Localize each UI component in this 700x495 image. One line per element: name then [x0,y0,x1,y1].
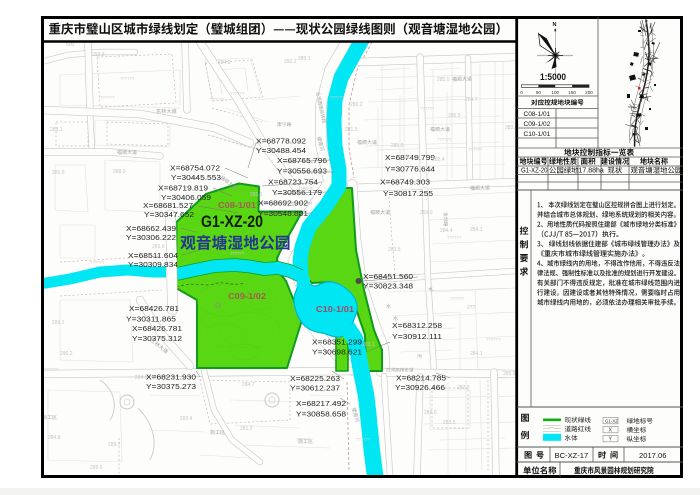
svg-text:X=68681.527: X=68681.527 [143,201,193,210]
svg-text:284.1: 284.1 [470,227,483,233]
svg-text:283.1: 283.1 [362,342,375,348]
svg-text:??????: ?????? [468,147,483,152]
svg-text:X=68312.258: X=68312.258 [392,321,442,330]
svg-text:X=68749.303: X=68749.303 [380,178,430,187]
svg-text:282.0: 282.0 [424,410,437,416]
svg-text:282.4: 282.4 [432,157,445,163]
svg-text:2017.06: 2017.06 [639,451,666,460]
svg-text:X=68214.785: X=68214.785 [396,374,446,383]
svg-text:282.0: 282.0 [457,385,470,391]
svg-text:283.6: 283.6 [152,244,165,250]
svg-text:X=68662.439: X=68662.439 [126,224,176,233]
svg-text:263.0: 263.0 [420,210,433,216]
svg-text:Y=30823.348: Y=30823.348 [363,282,413,291]
svg-text:X=68719.819: X=68719.819 [158,184,208,193]
svg-text:X=68217.492: X=68217.492 [296,399,346,408]
svg-text:285.9: 285.9 [503,371,516,377]
svg-text:284.9: 284.9 [135,375,148,381]
svg-text:284.8: 284.8 [48,435,61,441]
svg-text:G1-XZ-20: G1-XZ-20 [521,166,548,175]
svg-text:??????: ?????? [447,235,462,240]
svg-text:??????: ?????? [44,367,59,372]
svg-text:C10-1/01: C10-1/01 [316,304,354,314]
svg-text:??????: ?????? [230,91,245,96]
svg-text:??????: ?????? [100,95,115,100]
svg-text:286.2: 286.2 [350,102,363,108]
svg-text:Y=30926.466: Y=30926.466 [395,383,445,392]
svg-text:290.2: 290.2 [60,351,73,357]
svg-text:??????: ?????? [90,260,105,265]
svg-text:Y=30698.621: Y=30698.621 [312,348,362,357]
svg-text:284.4: 284.4 [440,228,453,234]
svg-text:277: 277 [467,305,476,311]
svg-text:X=68426.781: X=68426.781 [129,304,179,313]
svg-text:Y=30488.454: Y=30488.454 [256,146,306,155]
svg-text:Y: Y [609,437,613,443]
svg-text:284.7: 284.7 [465,97,478,103]
svg-text:??????: ?????? [230,251,245,256]
svg-text:??????: ?????? [356,437,371,442]
svg-text:288.0: 288.0 [113,169,126,175]
svg-text:289.1: 289.1 [52,320,65,326]
svg-text:283.5: 283.5 [388,247,401,253]
svg-text:??????: ?????? [486,337,501,342]
svg-text:292.2: 292.2 [92,52,105,58]
svg-text:Y=30445.553: Y=30445.553 [171,173,221,182]
svg-text:285.5: 285.5 [391,143,404,149]
svg-text:C08-1/01: C08-1/01 [218,200,256,210]
svg-text:BC-XZ-17: BC-XZ-17 [555,451,589,460]
svg-text:284.7: 284.7 [242,382,255,388]
svg-text:Y=30306.222: Y=30306.222 [126,233,176,242]
svg-text:100: 100 [551,90,559,95]
svg-text:C10-1/01: C10-1/01 [524,131,551,138]
svg-text:Y=30309.834: Y=30309.834 [128,260,178,269]
svg-text:??????: ?????? [120,76,135,81]
svg-text:G1-XZ-20: G1-XZ-20 [201,212,263,231]
svg-text:Y=30375.312: Y=30375.312 [132,334,182,343]
svg-text:C09-1/02: C09-1/02 [524,121,551,128]
svg-text:285.3: 285.3 [250,192,263,198]
svg-text:285.1: 285.1 [298,56,311,62]
svg-text:X: X [609,428,613,434]
svg-text:C08-1/01: C08-1/01 [524,111,551,118]
svg-text:??????: ?????? [210,97,225,102]
svg-text:X=68426.781: X=68426.781 [132,324,182,333]
svg-text:??????: ?????? [318,169,333,174]
svg-text:X=68754.072: X=68754.072 [170,164,220,173]
svg-text:50: 50 [536,90,542,95]
svg-text:284.1: 284.1 [470,351,483,357]
svg-text:285.5: 285.5 [448,113,461,119]
svg-text:??????: ?????? [296,437,311,442]
svg-text:500: 500 [66,42,75,48]
svg-text:X=68511.604: X=68511.604 [128,251,178,260]
svg-text:Y=30612.237: Y=30612.237 [290,384,340,393]
svg-text:X=68451.560: X=68451.560 [363,272,413,281]
svg-text:200: 200 [585,90,593,95]
svg-text:??????: ?????? [437,137,452,142]
svg-text:X=68351.299: X=68351.299 [312,338,362,347]
svg-text:X=68778.092: X=68778.092 [256,137,306,146]
svg-text:289.5: 289.5 [90,465,103,471]
svg-text:Y=30912.111: Y=30912.111 [392,332,442,341]
svg-text:N: N [553,22,557,28]
svg-text:??????: ?????? [450,296,465,301]
svg-text:285.0: 285.0 [437,77,450,83]
svg-text:17.88ha: 17.88ha [579,168,604,175]
svg-text:0: 0 [520,90,523,95]
svg-text:Y=30311.865: Y=30311.865 [126,315,176,324]
svg-text:X=68231.930: X=68231.930 [146,373,196,382]
svg-text:G1-XZ: G1-XZ [605,418,618,423]
svg-text:X=68225.263: X=68225.263 [290,374,340,383]
svg-text:1:5000: 1:5000 [540,72,566,82]
svg-text:281.5: 281.5 [345,127,358,133]
svg-text:C09-1/02: C09-1/02 [228,291,266,301]
svg-text:Y=30858.658: Y=30858.658 [296,410,346,419]
svg-text:283.1: 283.1 [50,127,63,133]
svg-text:Y=30776.644: Y=30776.644 [385,165,435,174]
svg-text:??????: ?????? [330,95,345,100]
svg-text:??????: ?????? [420,106,435,111]
svg-text:281.5: 281.5 [52,170,65,176]
svg-text:Y=30375.273: Y=30375.273 [146,382,196,391]
svg-text:Y=30347.652: Y=30347.652 [144,210,194,219]
svg-text:281.2: 281.2 [240,426,253,432]
svg-text:289.7: 289.7 [108,442,121,448]
svg-text:280.0: 280.0 [300,187,313,193]
svg-text:283.4: 283.4 [180,416,193,422]
svg-text:283.0: 283.0 [404,155,417,161]
svg-text:292.2: 292.2 [284,59,297,65]
svg-text:150: 150 [568,90,576,95]
svg-text:Y=30817.255: Y=30817.255 [383,189,433,198]
svg-text:283.5: 283.5 [443,420,456,426]
svg-text:284.6: 284.6 [218,60,231,66]
